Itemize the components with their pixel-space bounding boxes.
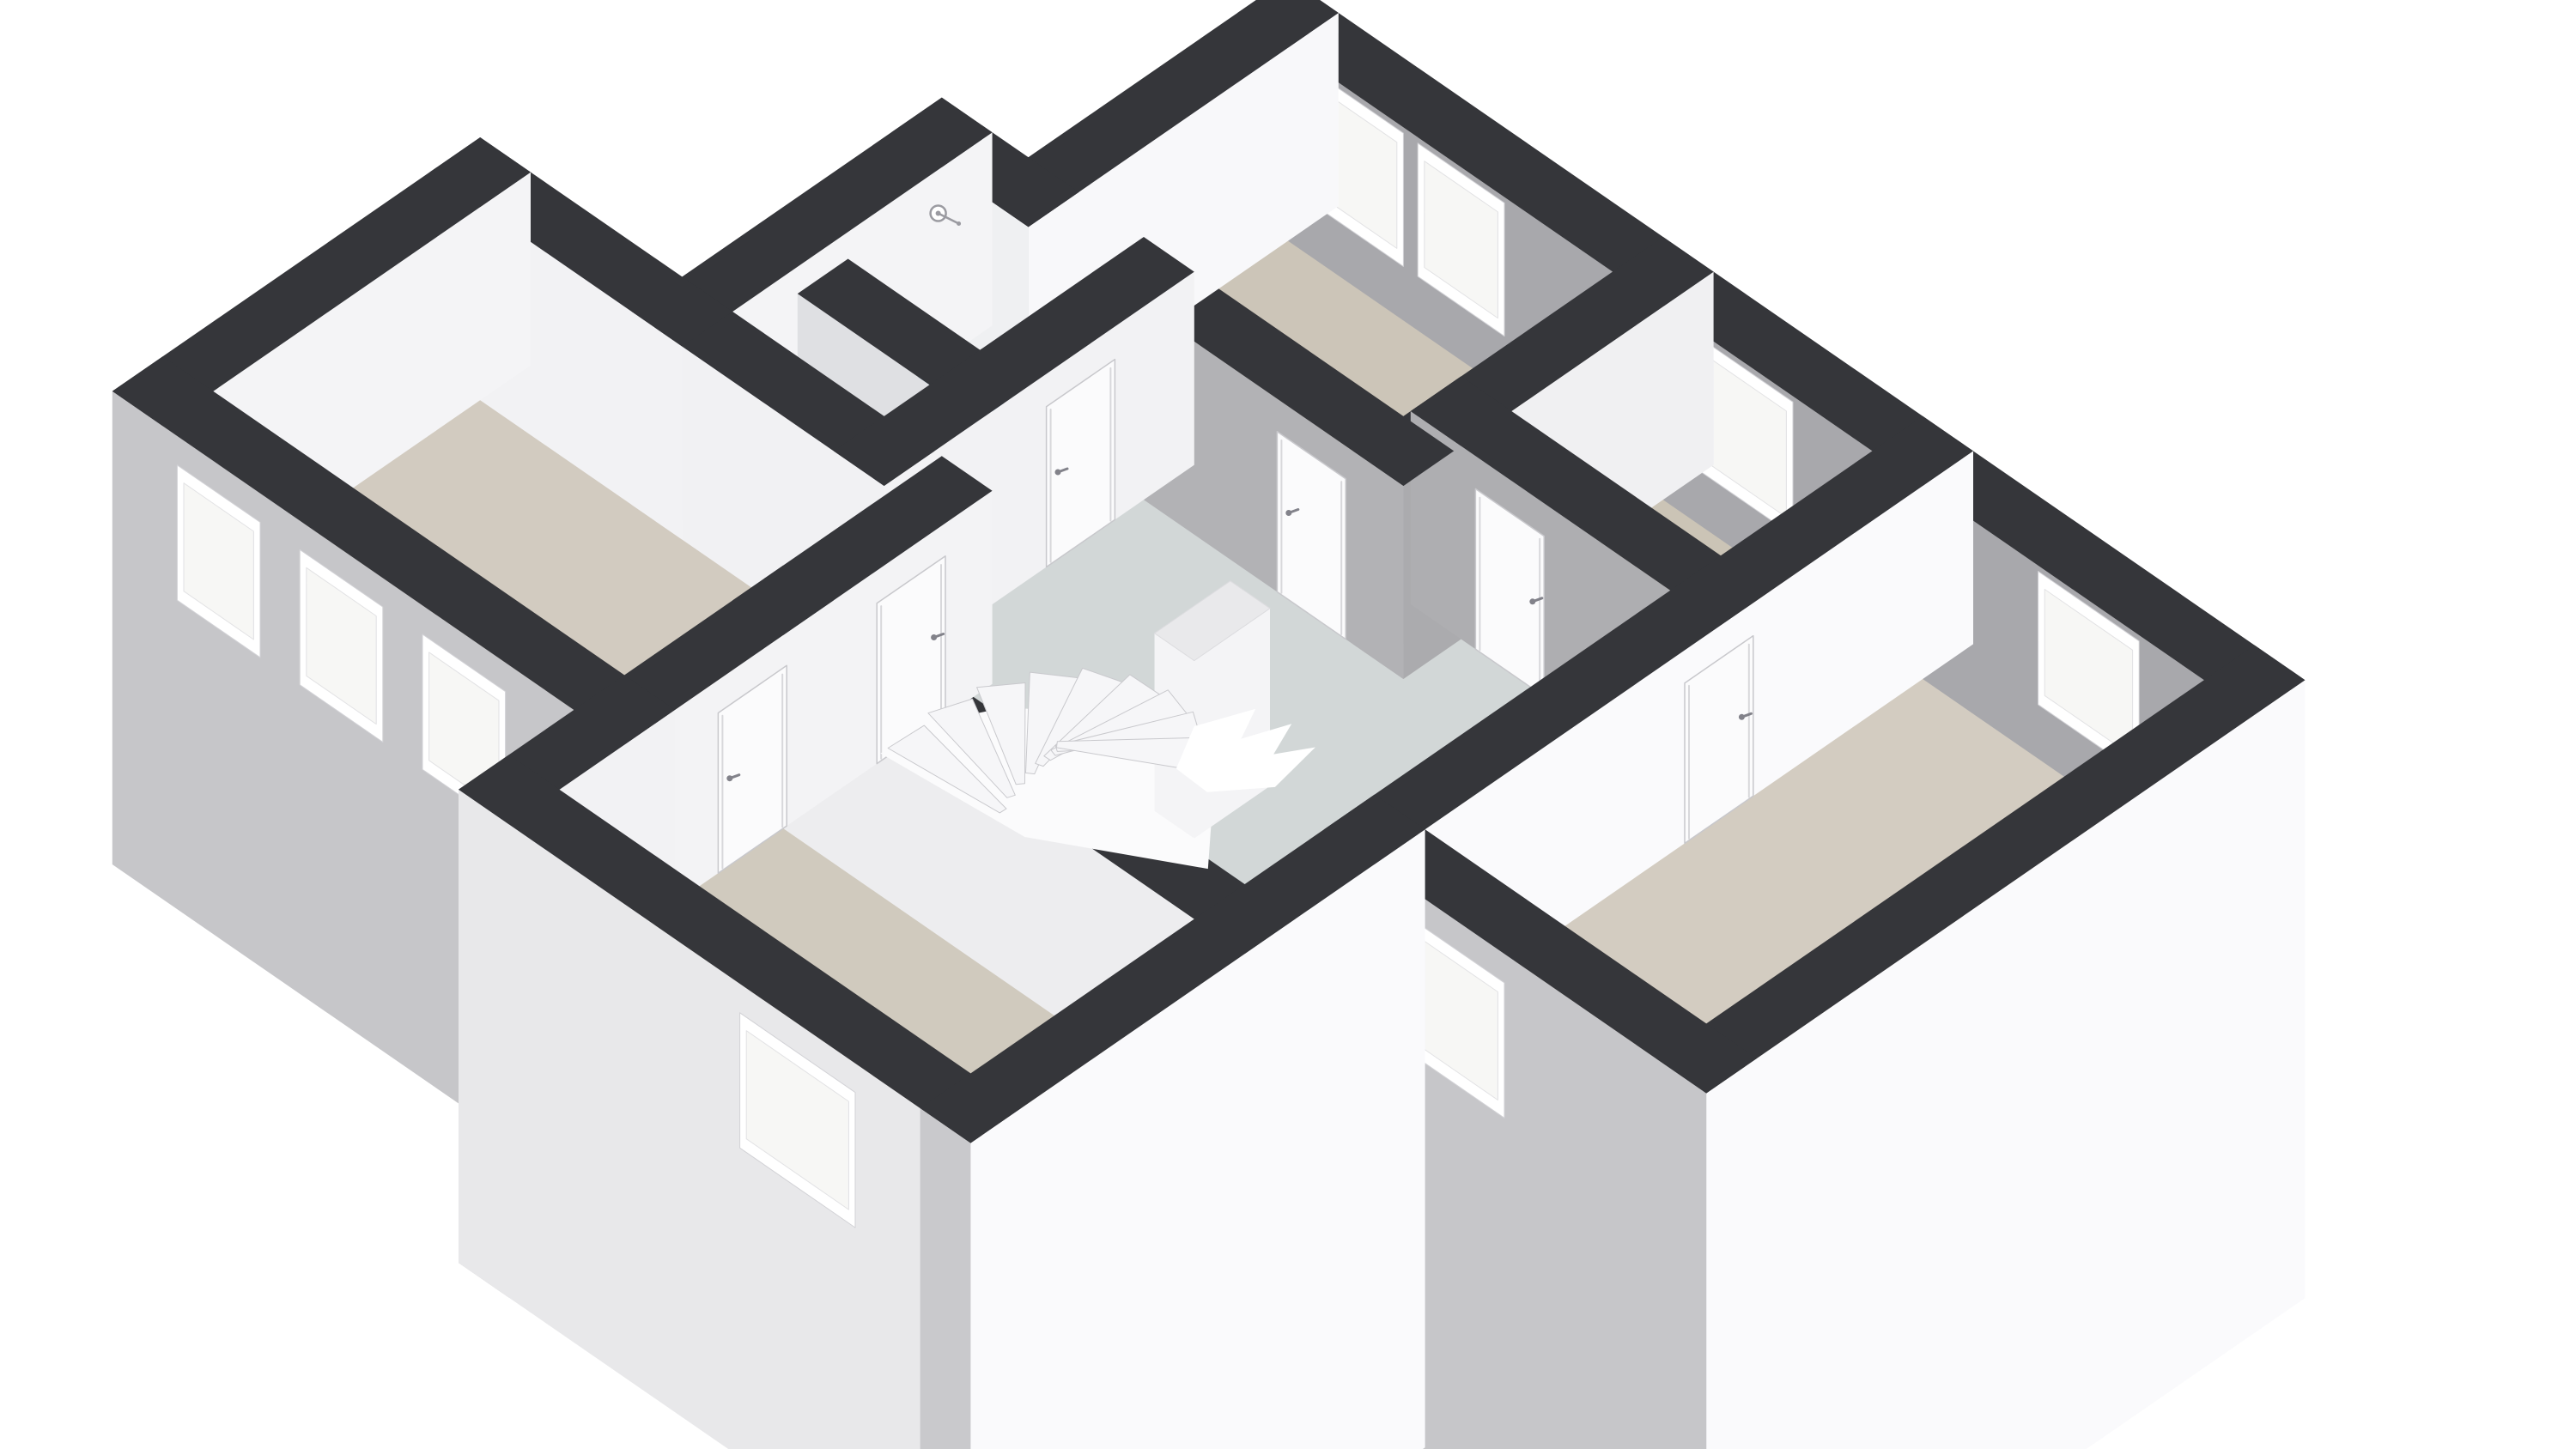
door-bedroom-right-handle <box>1739 714 1745 720</box>
door-bathroom-handle <box>1055 470 1061 476</box>
door-bedroom-small-handle <box>1529 598 1535 604</box>
wall-right-room-south-east-face <box>1706 1058 1757 1449</box>
shower-head-wall-mount <box>957 221 961 226</box>
door-bedroom-top-handle <box>1285 510 1291 516</box>
door-bedroom-left-handle <box>931 634 937 640</box>
floorplan-3d-view <box>0 0 2576 1449</box>
wall-east-lower-south-face <box>920 1108 971 1449</box>
door-bedroom-bottom-handle <box>726 775 732 781</box>
floorplan-stage <box>0 0 2576 1449</box>
